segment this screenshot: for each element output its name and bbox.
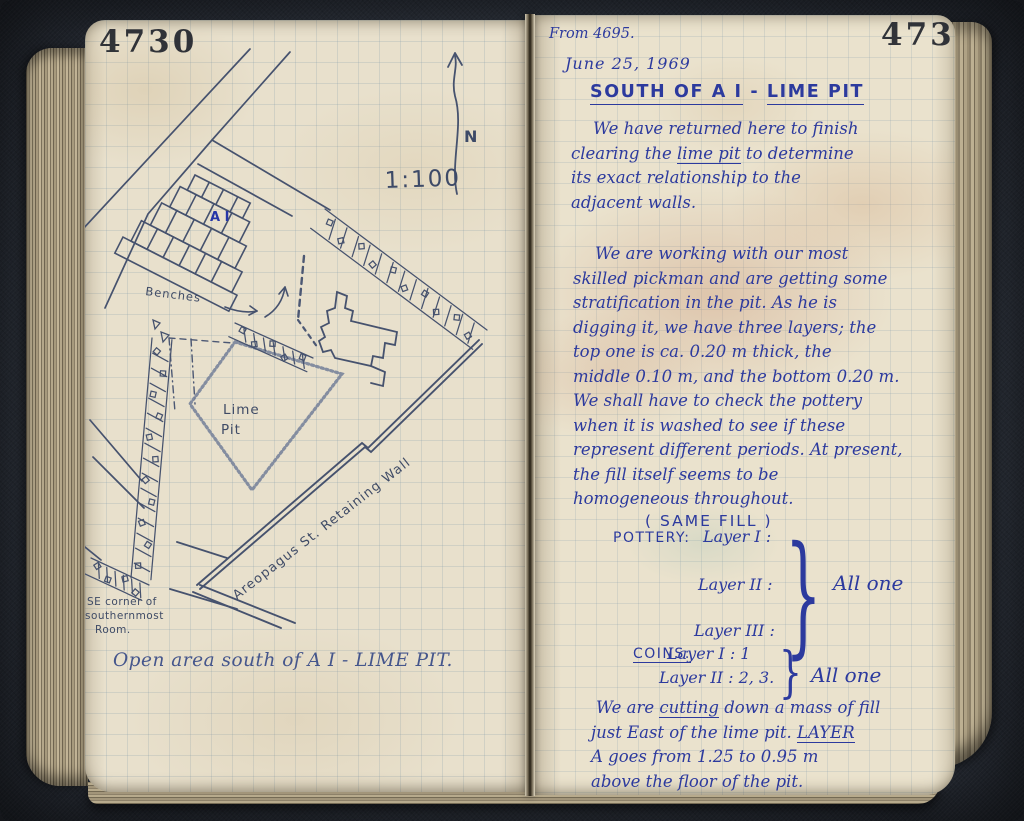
lime-pit-label-line2: Pit: [221, 422, 241, 438]
lime-pit-outline: [190, 342, 342, 490]
page-number-right: 4731: [881, 17, 955, 53]
se-corner-label-line1: SE corner of: [87, 596, 157, 608]
pottery-note: All one: [833, 571, 903, 595]
plan-caption: Open area south of A I - LIME PIT.: [113, 650, 453, 671]
coins-layer-1: Layer I : 1: [667, 644, 750, 663]
excavation-plan-drawing: A I Benches Lime Pit Areopagus St. Retai…: [85, 20, 527, 792]
pottery-layer-2: Layer II :: [698, 575, 773, 594]
se-corner-label-line2: southernmost: [85, 610, 164, 622]
paragraph-1: We have returned here to finishclearing …: [571, 117, 859, 215]
hatched-walls: [85, 209, 487, 600]
entry-title: SOUTH OF A I - LIME PIT: [590, 79, 864, 105]
scale-label: 1:100: [384, 165, 461, 194]
benches-arrows: [225, 287, 288, 317]
pottery-label: POTTERY:: [613, 530, 690, 546]
road-lines: [85, 49, 330, 308]
coins-layer-2: Layer II : 2, 3.: [659, 668, 774, 687]
paragraph-3: We are cutting down a mass of filljust E…: [591, 696, 880, 794]
structure-ai-label: A I: [210, 210, 229, 225]
retaining-wall: [170, 340, 482, 628]
left-page: 4730: [85, 20, 527, 792]
paragraph-2: We are working with our mostskilled pick…: [573, 242, 902, 512]
pottery-layer-1: Layer I :: [703, 527, 771, 546]
jagged-wall-fragment: [319, 292, 397, 366]
binding-gutter: [525, 14, 535, 796]
page-stack-left-edge: [26, 48, 88, 786]
se-corner-label-line3: Room.: [95, 624, 131, 636]
notebook-photo: 4730: [0, 0, 1024, 821]
coins-note: All one: [811, 663, 881, 687]
pottery-layer-3: Layer III :: [694, 621, 775, 640]
north-label: N: [464, 127, 477, 146]
lower-left-wall-lines: [85, 420, 144, 560]
benches-label: Benches: [145, 284, 202, 305]
entry-date: June 25, 1969: [565, 54, 691, 73]
jagged-wall-step: [371, 366, 385, 386]
from-reference: From 4695.: [549, 26, 635, 42]
wall-spur-stones: [153, 320, 169, 342]
right-page: 4731 From 4695. June 25, 1969 SOUTH OF A…: [533, 15, 955, 795]
lime-pit-label-line1: Lime: [223, 402, 260, 418]
